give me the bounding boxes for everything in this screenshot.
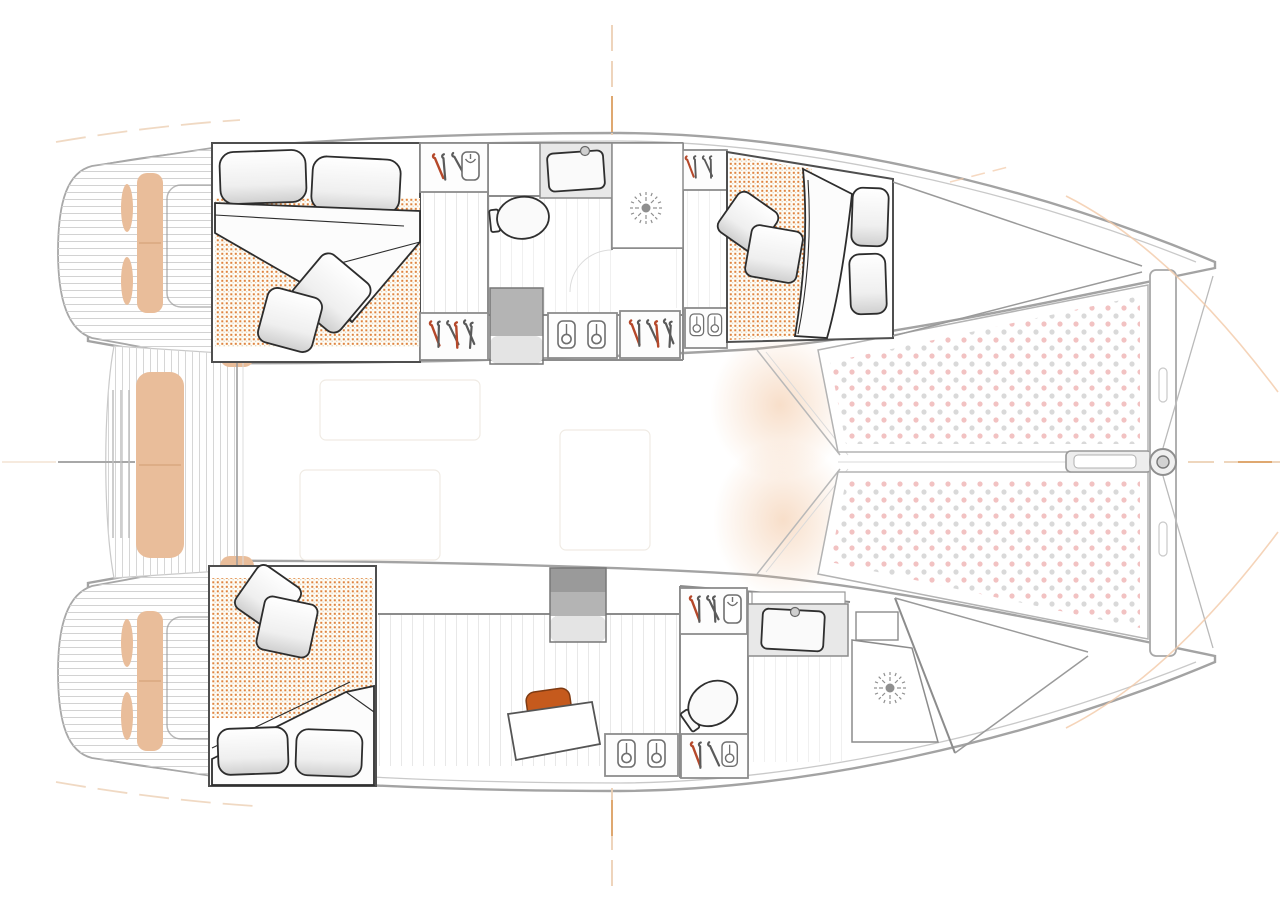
pillow (217, 727, 289, 775)
accent-dash-top (950, 166, 1012, 182)
faucet (581, 147, 590, 156)
lower-wardrobe-fwd-top (680, 588, 747, 634)
pillow (851, 187, 889, 246)
lower-aft-cabin (209, 562, 376, 786)
accent-arc-top-left (56, 120, 240, 142)
upper-swim-platform-teak (58, 148, 212, 360)
upper-wardrobe-mid (620, 311, 680, 358)
faucet (791, 608, 800, 617)
upper-hook-cabinet (548, 313, 617, 358)
shower-bench (856, 612, 898, 640)
upper-companionway-steps (490, 288, 543, 364)
cushion (255, 595, 319, 659)
upper-wardrobe-aft-top (420, 143, 488, 192)
floorplan-canvas (0, 0, 1280, 905)
saloon-table-hint (560, 430, 650, 550)
upper-aft-cabin (212, 143, 420, 362)
lower-swim-platform-teak (58, 564, 212, 776)
washbasin-icon (547, 150, 606, 192)
bowsprit-inner (1074, 455, 1136, 468)
coat-hook-icon (722, 742, 737, 766)
coat-hook-icon (618, 740, 635, 767)
shower-stall (612, 143, 683, 248)
pillow (219, 150, 307, 205)
lower-hook-cabinet (605, 734, 678, 776)
catamaran-floorplan (0, 0, 1280, 905)
upper-wardrobe-aft-bottom (420, 313, 488, 360)
upper-stern-cushion-b (121, 257, 133, 305)
saloon (237, 330, 853, 600)
saloon-settee-hint (300, 470, 440, 560)
lower-head-floor (748, 652, 850, 762)
pillow (295, 729, 363, 777)
lower-stern-cushion-a (121, 619, 133, 667)
saloon-galley-hint (320, 380, 480, 440)
pillow (311, 156, 402, 215)
vanity-shelf (752, 592, 845, 604)
pillow (849, 253, 887, 314)
garment-icon (462, 152, 479, 180)
cushion (744, 224, 804, 284)
bowsprit-fitting-pin (1157, 456, 1169, 468)
garment-icon (724, 595, 741, 623)
coat-hook-icon (588, 321, 605, 348)
coat-hook-icon (648, 740, 665, 767)
upper-stern-cushion-a (121, 184, 133, 232)
aft-cockpit (58, 340, 254, 583)
upper-corridor-floor (420, 192, 488, 315)
lower-companionway-steps (550, 568, 606, 642)
coat-hook-icon (558, 321, 575, 348)
lower-wardrobe-fwd-bottom (681, 734, 748, 778)
upper-hook-cabinet-fwd (685, 308, 727, 348)
lower-stern-cushion-b (121, 692, 133, 740)
coat-hook-icon (708, 314, 722, 336)
coat-hook-icon (690, 314, 704, 336)
forward-crossbeam (1150, 270, 1213, 656)
